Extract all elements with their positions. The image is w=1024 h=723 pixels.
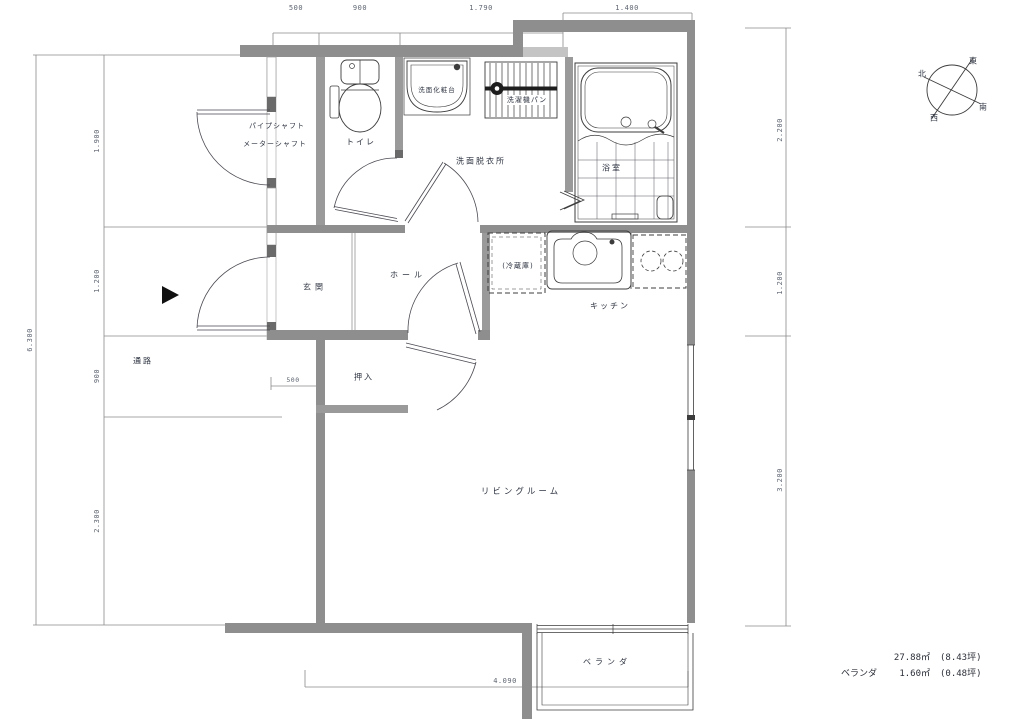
dim-left-1900: 1.900 bbox=[93, 129, 101, 153]
label-kitchen: キッチン bbox=[590, 301, 630, 312]
label-vanity: 洗面化粧台 bbox=[418, 84, 456, 94]
bathroom-fixtures bbox=[560, 63, 677, 222]
label-hall: ホール bbox=[390, 270, 426, 281]
dim-top-1790: 1.790 bbox=[469, 4, 493, 12]
label-fridge: (冷蔵庫) bbox=[502, 261, 533, 271]
floorplan-page: パイプシャフト メーターシャフト トイレ 洗面化粧台 洗濯機パン 洗面脱衣所 浴… bbox=[0, 0, 1024, 723]
toilet-fixture bbox=[330, 60, 381, 132]
compass-west: 西 bbox=[930, 113, 938, 124]
area-veranda-tsubo: (0.48坪) bbox=[940, 666, 982, 679]
label-living-room: リビングルーム bbox=[481, 485, 561, 497]
label-toilet: トイレ bbox=[346, 137, 376, 148]
compass-north: 北 bbox=[918, 69, 926, 80]
label-passage: 通路 bbox=[133, 356, 153, 367]
dim-right-1200: 1.200 bbox=[776, 271, 784, 295]
dim-top-1400: 1.400 bbox=[615, 4, 639, 12]
area-veranda-value: 1.60㎡ bbox=[868, 666, 930, 679]
label-washroom: 洗面脱衣所 bbox=[456, 156, 506, 167]
door-swings bbox=[197, 110, 480, 410]
dim-right-2200: 2.200 bbox=[776, 118, 784, 142]
area-main-value: 27.88㎡ bbox=[868, 650, 930, 663]
washer-pan bbox=[485, 62, 557, 118]
veranda-outline bbox=[537, 633, 693, 710]
label-closet: 押入 bbox=[354, 372, 374, 383]
dim-top-900: 900 bbox=[353, 4, 367, 12]
compass-east: 東 bbox=[969, 56, 977, 67]
label-washer-pan: 洗濯機パン bbox=[506, 95, 548, 105]
label-meter-shaft: メーターシャフト bbox=[243, 139, 307, 149]
entrance-arrow-icon bbox=[162, 286, 179, 304]
dim-left-900: 900 bbox=[93, 369, 101, 383]
area-main-tsubo: (8.43坪) bbox=[940, 650, 982, 663]
dim-entrance-step-500: 500 bbox=[286, 376, 299, 384]
label-veranda: ベランダ bbox=[583, 657, 631, 668]
dim-left-outer-6300: 6.300 bbox=[26, 328, 34, 352]
compass-south: 南 bbox=[979, 102, 987, 113]
label-entrance: 玄関 bbox=[303, 282, 327, 293]
dim-right-3200: 3.200 bbox=[776, 468, 784, 492]
floorplan-drawing bbox=[0, 0, 1024, 723]
label-pipe-shaft: パイプシャフト bbox=[249, 121, 305, 131]
dim-top-500: 500 bbox=[289, 4, 303, 12]
label-bathroom: 浴室 bbox=[602, 163, 622, 174]
compass-icon bbox=[924, 58, 981, 118]
dim-left-2300: 2.300 bbox=[93, 509, 101, 533]
dim-bottom-4090: 4.090 bbox=[493, 677, 517, 685]
dim-left-1200: 1.200 bbox=[93, 269, 101, 293]
